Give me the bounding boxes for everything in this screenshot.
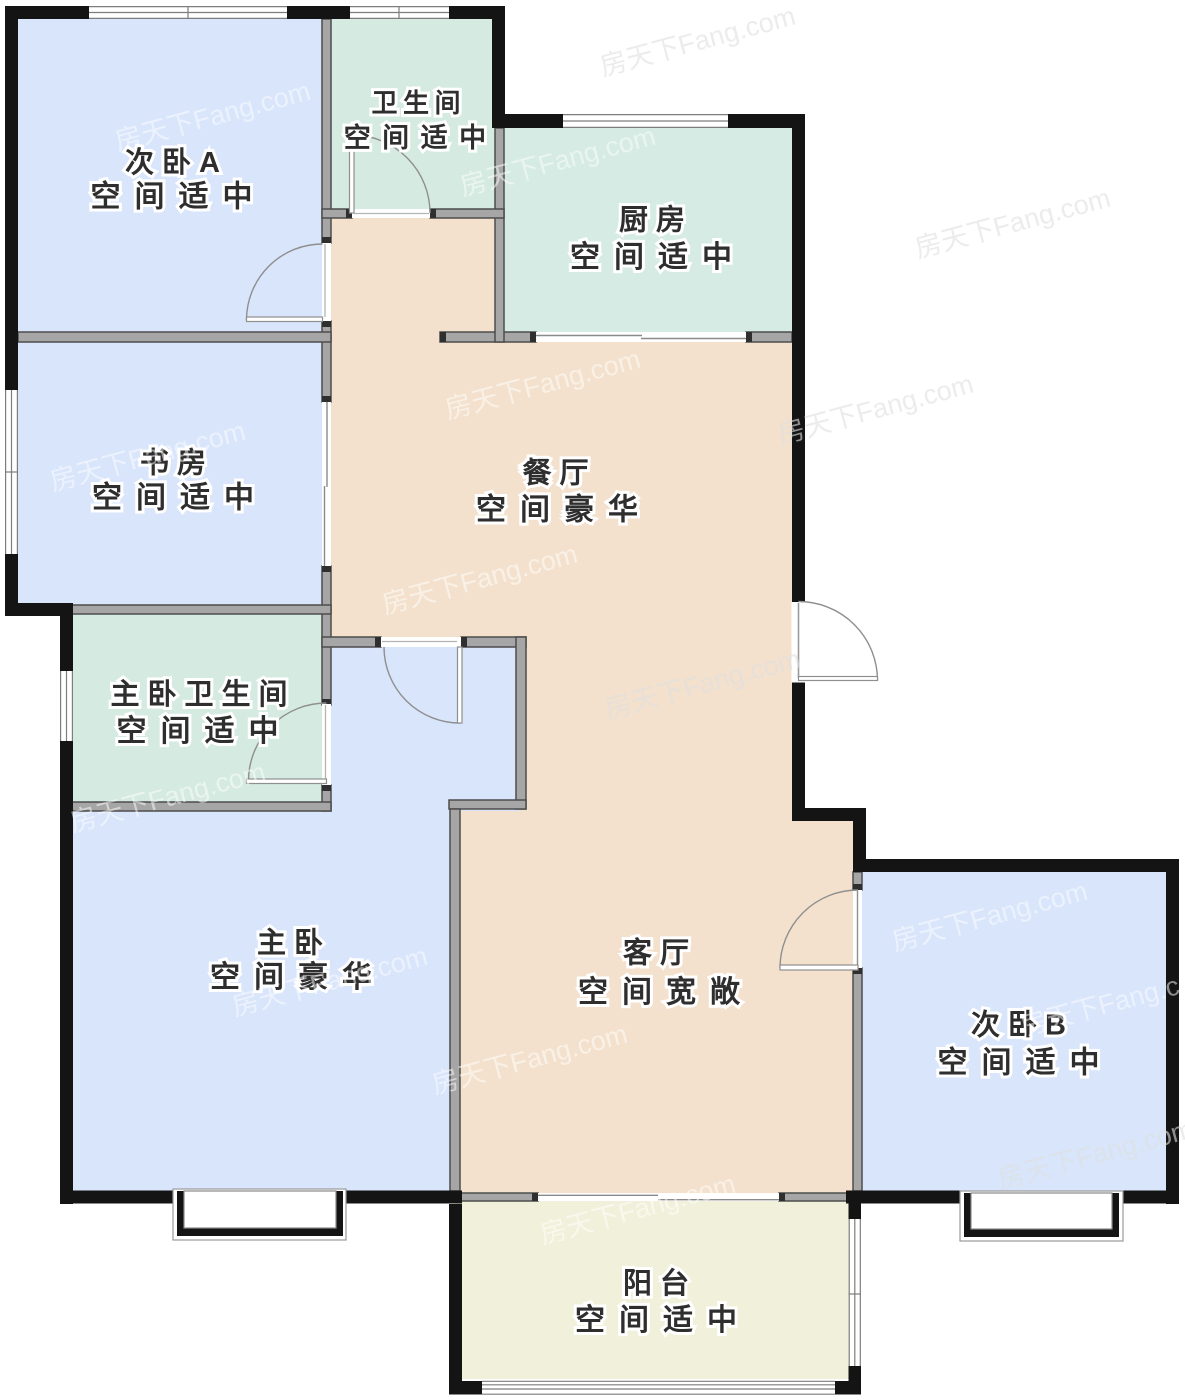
svg-text:客厅: 客厅: [623, 935, 697, 969]
svg-text:主卧卫生间: 主卧卫生间: [110, 678, 295, 711]
svg-text:卫生间: 卫生间: [371, 88, 466, 118]
svg-text:空间适中: 空间适中: [91, 181, 267, 214]
svg-text:空间适中: 空间适中: [938, 1046, 1114, 1079]
svg-text:空间适中: 空间适中: [570, 241, 746, 274]
svg-text:厨房: 厨房: [619, 204, 693, 237]
svg-text:餐厅: 餐厅: [522, 456, 596, 489]
svg-text:空间适中: 空间适中: [344, 122, 498, 153]
svg-text:主卧: 主卧: [257, 926, 331, 959]
svg-text:阳台: 阳台: [623, 1266, 697, 1300]
svg-text:空间适中: 空间适中: [92, 482, 268, 515]
svg-text:空间豪华: 空间豪华: [476, 493, 652, 527]
svg-text:空间适中: 空间适中: [117, 715, 293, 748]
svg-text:空间适中: 空间适中: [575, 1304, 751, 1337]
svg-text:空间宽敞: 空间宽敞: [578, 975, 754, 1009]
